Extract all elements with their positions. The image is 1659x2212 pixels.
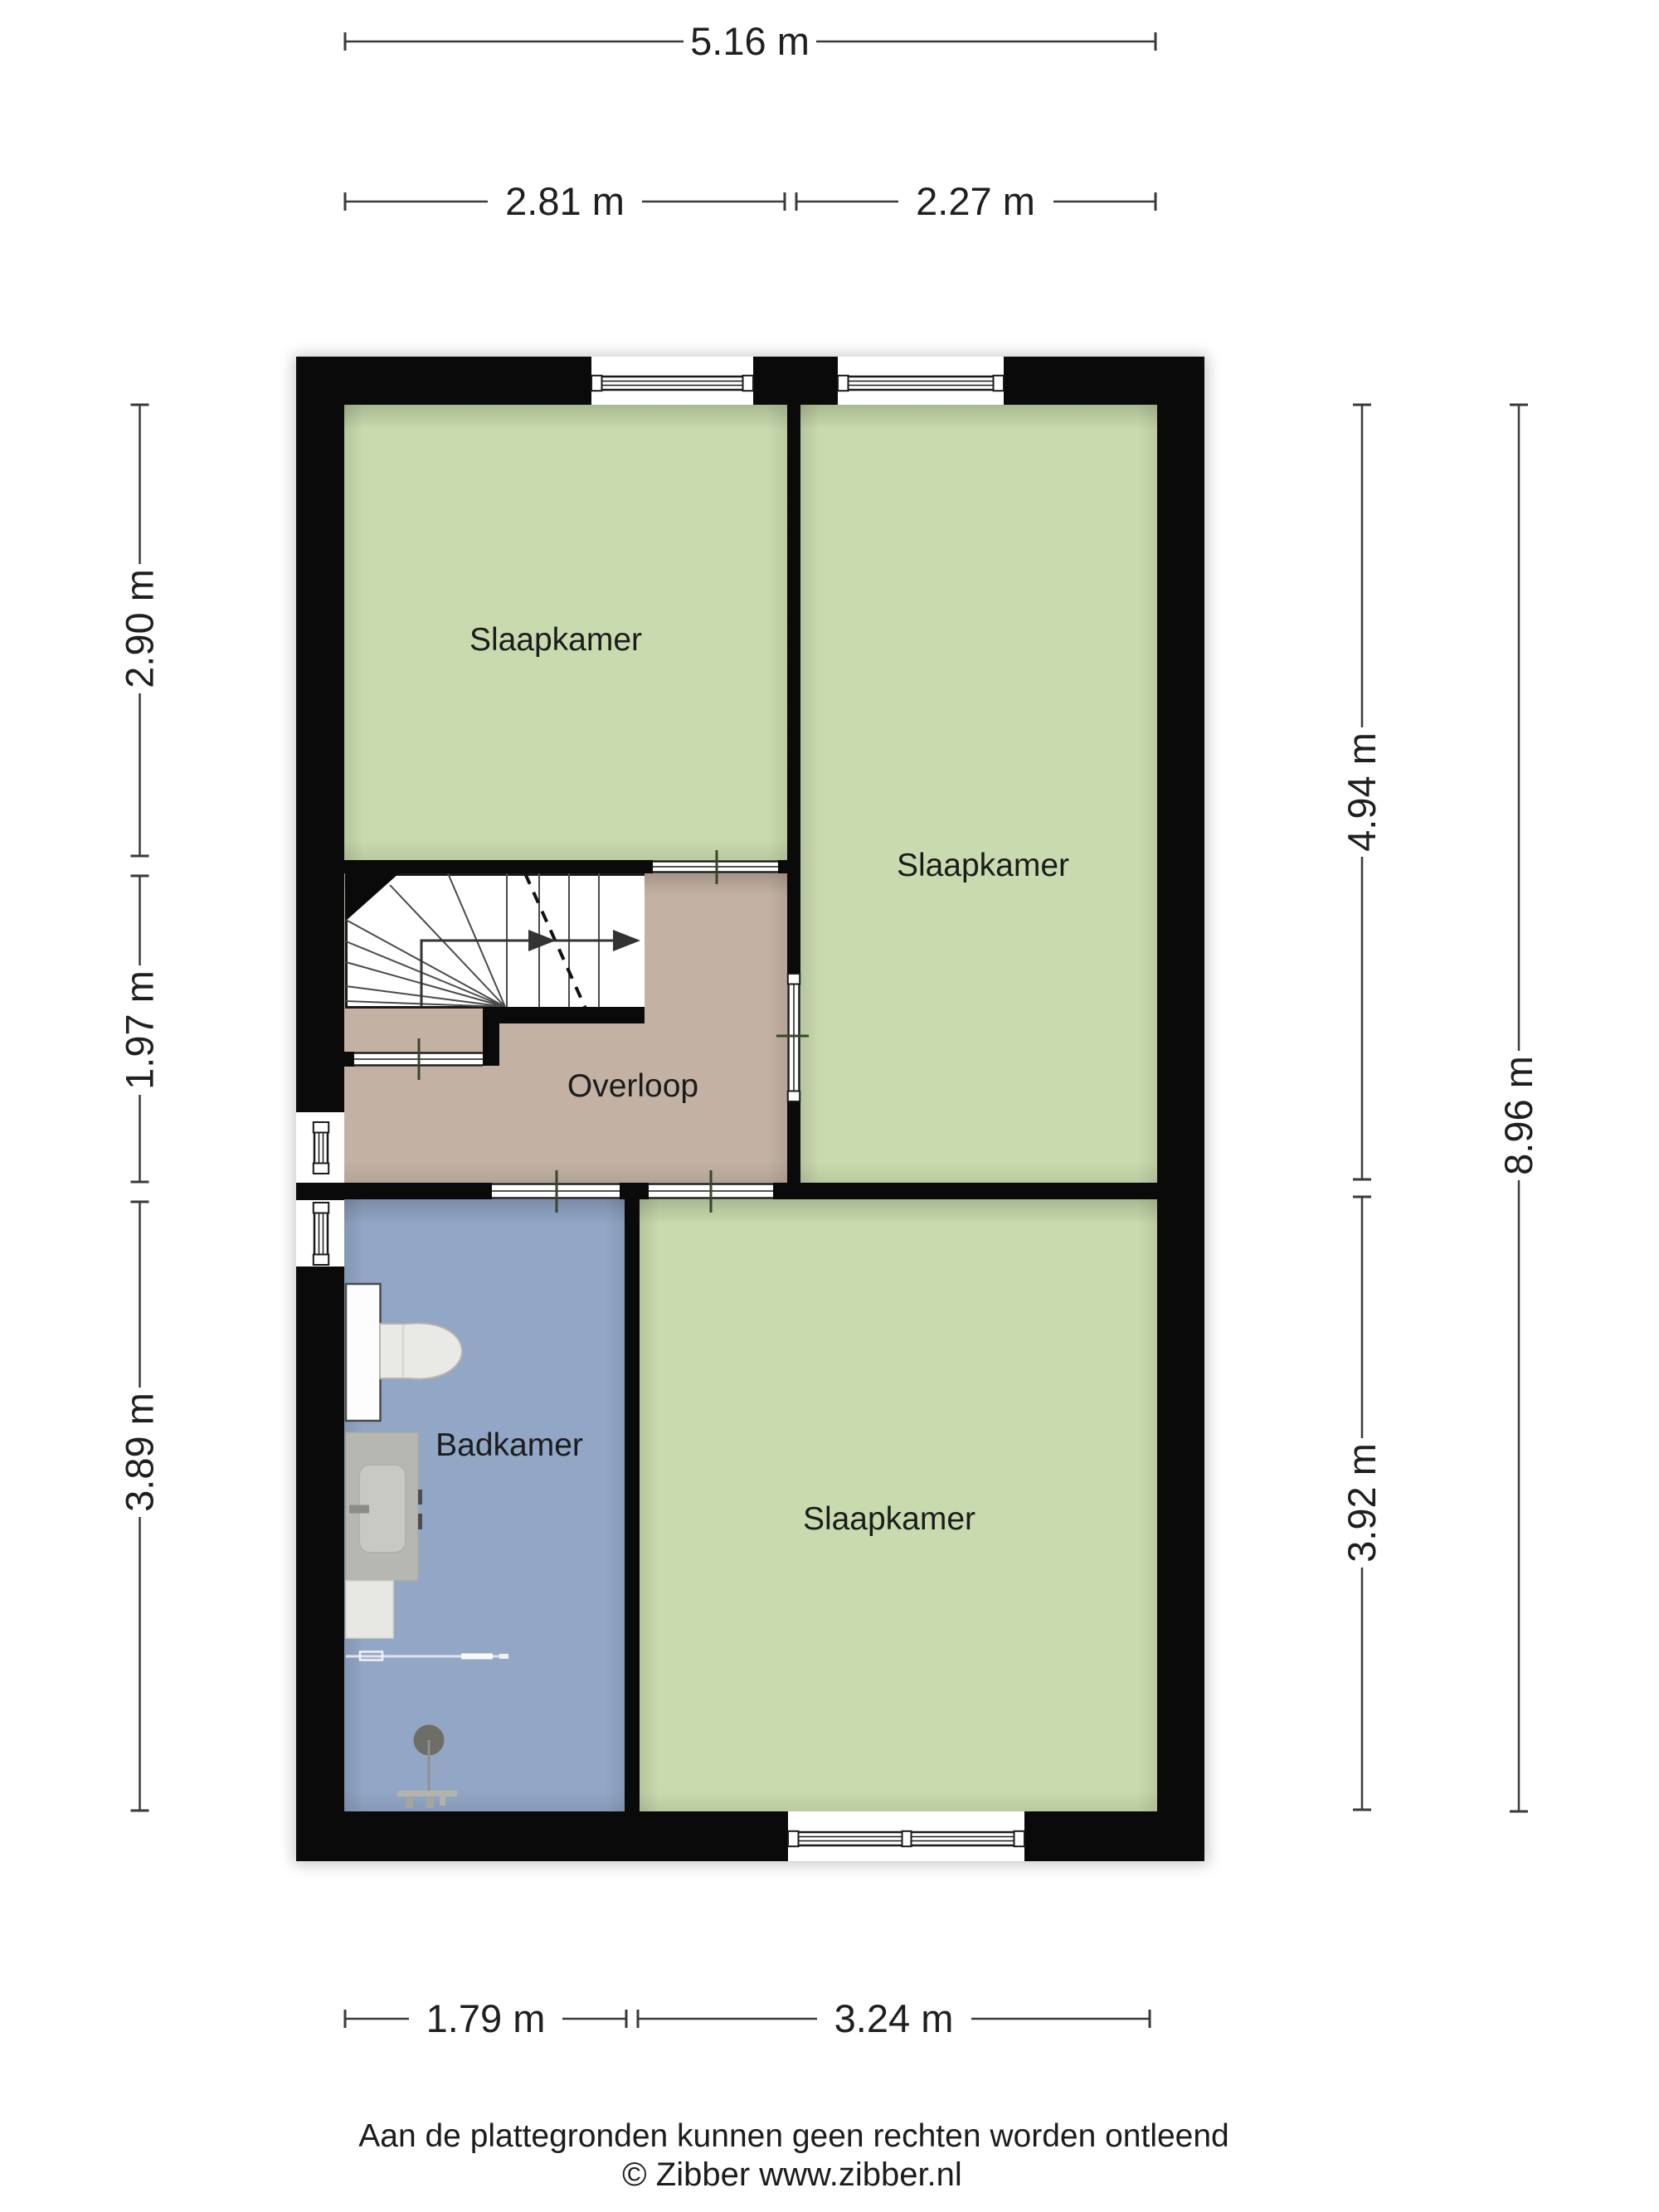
svg-text:5.16 m: 5.16 m <box>690 19 810 63</box>
svg-text:8.96 m: 8.96 m <box>1496 1056 1540 1175</box>
svg-text:2.81 m: 2.81 m <box>505 179 625 223</box>
svg-text:Overloop: Overloop <box>567 1068 698 1104</box>
svg-text:Aan de plattegronden kunnen ge: Aan de plattegronden kunnen geen rechten… <box>358 2118 1229 2154</box>
svg-text:3.89 m: 3.89 m <box>118 1393 162 1512</box>
svg-text:Slaapkamer: Slaapkamer <box>469 622 642 658</box>
svg-text:© Zibber www.zibber.nl: © Zibber www.zibber.nl <box>622 2156 962 2193</box>
svg-text:Slaapkamer: Slaapkamer <box>897 848 1069 883</box>
svg-text:1.79 m: 1.79 m <box>426 1996 546 2040</box>
svg-text:Slaapkamer: Slaapkamer <box>803 1501 975 1537</box>
svg-text:1.97 m: 1.97 m <box>118 970 162 1090</box>
svg-text:4.94 m: 4.94 m <box>1340 732 1384 852</box>
svg-text:2.90 m: 2.90 m <box>118 569 162 688</box>
svg-text:2.27 m: 2.27 m <box>916 179 1035 223</box>
svg-text:Badkamer: Badkamer <box>435 1427 583 1463</box>
svg-text:3.92 m: 3.92 m <box>1340 1443 1384 1563</box>
svg-text:3.24 m: 3.24 m <box>834 1996 954 2040</box>
